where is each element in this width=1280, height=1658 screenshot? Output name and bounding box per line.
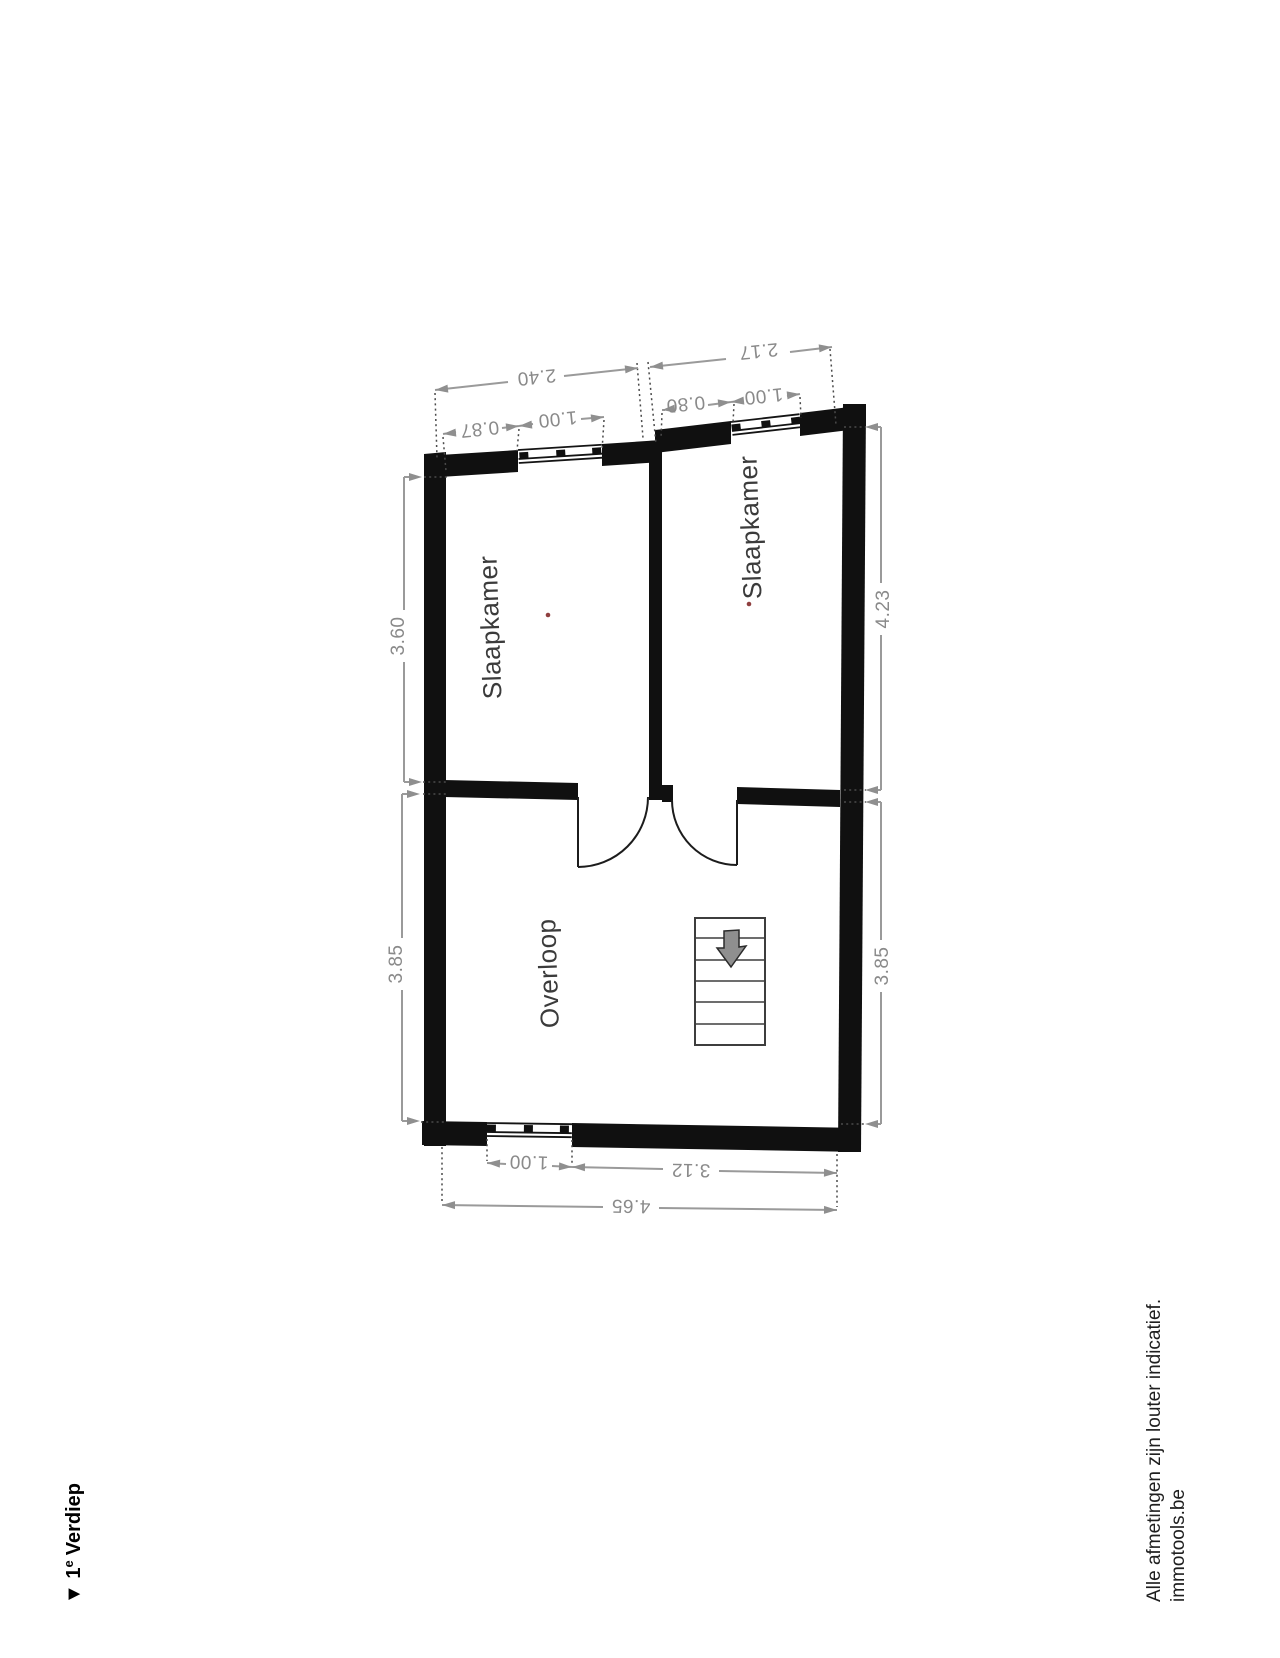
- floor-title-superscript: e: [61, 1560, 76, 1567]
- dim-label-bottom-window: 1.00: [509, 1150, 549, 1172]
- room-label-bedroom-right: Slaapkamer: [733, 455, 768, 600]
- dim-label-top-left-total: 2.40: [516, 364, 557, 389]
- marker-dot-bedroom-left: [546, 613, 551, 618]
- dim-label-top-right-window: 1.00: [743, 383, 784, 408]
- door-bedroom-right: [672, 800, 737, 865]
- dim-label-right-upper: 4.23: [873, 590, 894, 629]
- middle-wall: [649, 440, 662, 800]
- footer-brand: immotools.be: [1168, 1489, 1189, 1602]
- dim-label-top-left-window: 1.00: [537, 406, 578, 431]
- window-top-left: [518, 445, 603, 463]
- door-bedroom-left: [578, 797, 648, 867]
- dim-label-right-lower: 3.85: [872, 947, 893, 986]
- footer-disclaimer: Alle afmetingen zijn louter indicatief.: [1144, 1299, 1165, 1602]
- floor-title: ▼ 1eVerdiep: [61, 1483, 85, 1604]
- walls: [422, 404, 866, 1152]
- floor-plan-svg: 2.40 2.17 0.87 1.00 0.80 1.00 3.60 3.85 …: [0, 0, 1280, 1658]
- dim-label-bottom-total: 4.65: [611, 1195, 650, 1217]
- dim-label-top-right-total: 2.17: [738, 338, 779, 363]
- dim-label-bottom-right: 3.12: [671, 1159, 710, 1181]
- dim-label-left-lower: 3.85: [386, 945, 407, 984]
- interior-wall-right: [737, 787, 840, 807]
- stairs: [695, 918, 765, 1045]
- extension-lines: [421, 349, 866, 1207]
- door-arc: [578, 797, 648, 867]
- window-bottom: [486, 1123, 572, 1137]
- floor-title-main: ▼ 1: [63, 1568, 85, 1604]
- dim-label-top-left-offset: 0.87: [459, 416, 500, 441]
- window-top-right: [731, 414, 801, 435]
- interior-wall-stub: [662, 785, 673, 802]
- interior-wall-left: [444, 780, 578, 800]
- floor-title-name: Verdiep: [63, 1483, 85, 1555]
- door-arc: [672, 800, 737, 865]
- left-wall: [424, 452, 446, 1146]
- top-wall-right-a: [655, 421, 731, 453]
- floorplan-page: 2.40 2.17 0.87 1.00 0.80 1.00 3.60 3.85 …: [0, 0, 1280, 1658]
- marker-dot-bedroom-right: [747, 602, 752, 607]
- dim-label-left-upper: 3.60: [388, 617, 409, 656]
- room-label-landing: Overloop: [531, 918, 565, 1028]
- bottom-wall-right: [572, 1123, 861, 1152]
- bottom-wall-left: [422, 1121, 487, 1146]
- dim-label-top-right-offset: 0.80: [665, 391, 706, 416]
- room-label-bedroom-left: Slaapkamer: [473, 555, 508, 700]
- right-wall: [838, 404, 866, 1152]
